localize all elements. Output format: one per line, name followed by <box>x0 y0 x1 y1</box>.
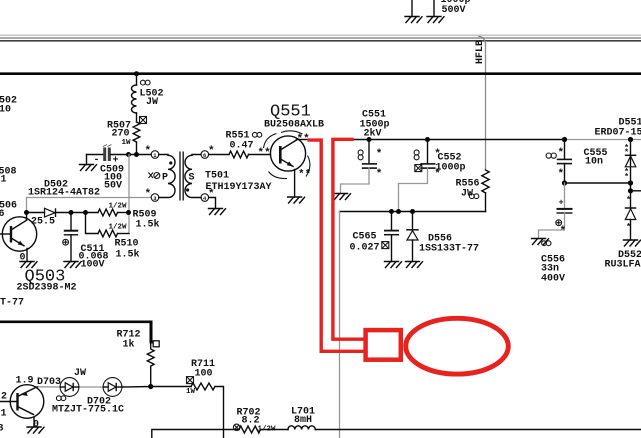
svg-text:100V: 100V <box>81 259 105 270</box>
svg-text:ERD07-15: ERD07-15 <box>595 127 641 138</box>
svg-text:1.5k: 1.5k <box>116 249 140 261</box>
svg-text:*: * <box>376 149 383 161</box>
svg-text:*: * <box>560 226 567 238</box>
svg-text:10: 10 <box>0 104 11 115</box>
svg-text:S: S <box>189 173 195 184</box>
svg-text:R510: R510 <box>115 239 139 250</box>
svg-text:*: * <box>376 169 383 181</box>
svg-text:*: * <box>626 195 631 205</box>
svg-text:270: 270 <box>112 129 130 140</box>
svg-text:50V: 50V <box>104 181 122 192</box>
svg-text:*: * <box>624 172 629 182</box>
svg-text:1000p: 1000p <box>436 163 466 174</box>
svg-text:ETH19Y173AY: ETH19Y173AY <box>206 182 272 193</box>
svg-text:JW: JW <box>146 97 158 108</box>
svg-text:**: ** <box>298 169 311 181</box>
svg-text:6: 6 <box>203 152 206 159</box>
svg-text:*: * <box>208 146 215 158</box>
svg-text:8: 8 <box>0 424 4 435</box>
svg-text:2SD2398-M2: 2SD2398-M2 <box>17 282 77 293</box>
svg-text:1W: 1W <box>122 139 132 147</box>
svg-text:1k: 1k <box>123 338 135 350</box>
svg-text:8mH: 8mH <box>294 415 312 426</box>
svg-text:BU2508AXLB: BU2508AXLB <box>264 120 324 131</box>
svg-text:1/2W: 1/2W <box>109 224 128 232</box>
svg-text:JW: JW <box>74 368 86 379</box>
svg-text:**: ** <box>258 147 271 159</box>
svg-text:*: * <box>558 148 565 160</box>
svg-text:0: 0 <box>33 419 39 430</box>
svg-text:P: P <box>162 173 168 184</box>
svg-text:8.2: 8.2 <box>242 415 260 426</box>
svg-text:*: * <box>208 189 215 201</box>
svg-text:0.47: 0.47 <box>230 141 254 152</box>
svg-text:0.027: 0.027 <box>350 242 380 253</box>
svg-text:+: + <box>559 198 564 208</box>
svg-text:MTZJT-775.1C: MTZJT-775.1C <box>52 405 124 416</box>
svg-text:C565: C565 <box>353 232 377 243</box>
svg-text:*: * <box>624 148 629 158</box>
svg-text:D703: D703 <box>37 377 61 388</box>
svg-text:6: 6 <box>0 209 5 220</box>
svg-text:HFLB: HFLB <box>475 40 486 64</box>
svg-text:1SS133T-77: 1SS133T-77 <box>419 243 479 254</box>
svg-text:1SR124-4AT82: 1SR124-4AT82 <box>28 188 100 199</box>
svg-text:500V: 500V <box>442 5 466 16</box>
svg-text:2kV: 2kV <box>364 128 382 140</box>
svg-text:-: - <box>94 155 100 166</box>
svg-text:1: 1 <box>1 175 7 186</box>
svg-text:T-77: T-77 <box>0 297 24 308</box>
svg-text:1: 1 <box>1 409 7 420</box>
svg-text:RU3LFA1: RU3LFA1 <box>605 259 641 270</box>
svg-text:2: 2 <box>1 392 7 403</box>
svg-text:*: * <box>145 146 152 158</box>
svg-text:400V: 400V <box>541 273 565 284</box>
svg-text:*: * <box>145 189 152 201</box>
svg-text:*: * <box>558 169 565 181</box>
svg-text:1W: 1W <box>186 388 196 396</box>
svg-text:T501: T501 <box>205 171 229 182</box>
svg-text:100: 100 <box>195 369 213 380</box>
svg-text:1.5k: 1.5k <box>136 219 160 231</box>
svg-text:10n: 10n <box>585 157 603 168</box>
svg-text:1/2W: 1/2W <box>109 202 128 210</box>
